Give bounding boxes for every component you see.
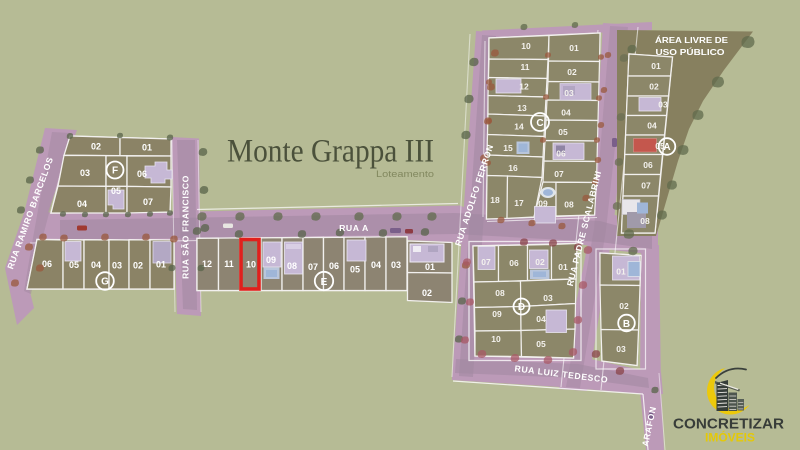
svg-text:ÁREA LIVRE DE: ÁREA LIVRE DE bbox=[655, 35, 728, 45]
svg-text:11: 11 bbox=[224, 259, 234, 269]
svg-text:06: 06 bbox=[329, 261, 339, 271]
svg-text:D: D bbox=[518, 302, 525, 313]
svg-text:08: 08 bbox=[564, 200, 574, 210]
svg-text:02: 02 bbox=[133, 261, 143, 271]
svg-text:09: 09 bbox=[492, 309, 502, 319]
svg-text:02: 02 bbox=[422, 288, 432, 298]
svg-text:03: 03 bbox=[112, 261, 122, 271]
svg-text:01: 01 bbox=[616, 267, 626, 277]
svg-text:13: 13 bbox=[517, 103, 527, 113]
svg-text:A: A bbox=[663, 142, 670, 153]
svg-text:08: 08 bbox=[287, 261, 297, 271]
svg-text:06: 06 bbox=[137, 169, 147, 179]
svg-text:CONCRETIZAR: CONCRETIZAR bbox=[673, 417, 785, 433]
svg-text:05: 05 bbox=[558, 127, 568, 137]
svg-text:03: 03 bbox=[616, 344, 626, 354]
svg-text:01: 01 bbox=[651, 61, 661, 71]
svg-text:B: B bbox=[623, 319, 630, 330]
svg-text:06: 06 bbox=[556, 149, 566, 159]
svg-text:02: 02 bbox=[535, 257, 545, 267]
svg-text:18: 18 bbox=[490, 195, 500, 205]
svg-text:C: C bbox=[536, 118, 543, 129]
svg-text:04: 04 bbox=[91, 260, 101, 270]
svg-text:03: 03 bbox=[391, 260, 401, 270]
svg-text:02: 02 bbox=[649, 82, 659, 92]
svg-text:04: 04 bbox=[561, 108, 571, 118]
svg-text:10: 10 bbox=[491, 334, 501, 344]
svg-text:06: 06 bbox=[509, 258, 519, 268]
svg-text:01: 01 bbox=[156, 260, 166, 270]
svg-text:05: 05 bbox=[111, 186, 121, 196]
svg-text:14: 14 bbox=[514, 122, 524, 132]
svg-text:07: 07 bbox=[481, 257, 491, 267]
svg-text:E: E bbox=[321, 277, 328, 288]
svg-text:RUA SÃO FRANCISCO: RUA SÃO FRANCISCO bbox=[181, 175, 191, 279]
svg-text:12: 12 bbox=[519, 82, 529, 92]
svg-text:01: 01 bbox=[569, 43, 579, 53]
svg-text:04: 04 bbox=[371, 260, 381, 270]
svg-text:05: 05 bbox=[536, 339, 546, 349]
svg-text:03: 03 bbox=[543, 293, 553, 303]
svg-text:02: 02 bbox=[567, 67, 577, 77]
svg-text:04: 04 bbox=[647, 121, 657, 131]
svg-text:10: 10 bbox=[246, 260, 256, 270]
svg-text:15: 15 bbox=[503, 143, 513, 153]
svg-text:03: 03 bbox=[80, 168, 90, 178]
svg-text:06: 06 bbox=[643, 160, 653, 170]
svg-text:F: F bbox=[112, 166, 118, 177]
svg-text:03: 03 bbox=[564, 88, 574, 98]
svg-text:05: 05 bbox=[350, 265, 360, 275]
svg-text:Monte Grappa III: Monte Grappa III bbox=[227, 134, 434, 170]
svg-text:02: 02 bbox=[91, 142, 101, 152]
svg-text:USO PÚBLICO: USO PÚBLICO bbox=[656, 46, 725, 57]
svg-text:10: 10 bbox=[521, 41, 531, 51]
svg-text:08: 08 bbox=[640, 216, 650, 226]
svg-text:04: 04 bbox=[77, 199, 87, 209]
svg-text:04: 04 bbox=[536, 314, 546, 324]
svg-text:08: 08 bbox=[495, 288, 505, 298]
svg-text:07: 07 bbox=[641, 181, 651, 191]
svg-text:07: 07 bbox=[143, 197, 153, 207]
svg-text:17: 17 bbox=[514, 198, 524, 208]
svg-text:Loteamento: Loteamento bbox=[376, 169, 434, 179]
svg-text:01: 01 bbox=[425, 262, 435, 272]
svg-text:09: 09 bbox=[266, 255, 276, 265]
svg-text:01: 01 bbox=[558, 262, 568, 272]
svg-text:07: 07 bbox=[308, 262, 318, 272]
svg-text:11: 11 bbox=[521, 62, 530, 72]
svg-text:02: 02 bbox=[619, 301, 629, 311]
svg-text:G: G bbox=[101, 277, 109, 288]
svg-text:16: 16 bbox=[508, 163, 518, 173]
svg-text:01: 01 bbox=[142, 143, 152, 153]
svg-text:05: 05 bbox=[69, 260, 79, 270]
svg-text:07: 07 bbox=[554, 169, 564, 179]
svg-text:03: 03 bbox=[658, 100, 668, 110]
svg-text:RUA A: RUA A bbox=[339, 223, 369, 233]
svg-text:09: 09 bbox=[538, 199, 548, 209]
svg-text:IMÓVEIS: IMÓVEIS bbox=[705, 432, 755, 445]
